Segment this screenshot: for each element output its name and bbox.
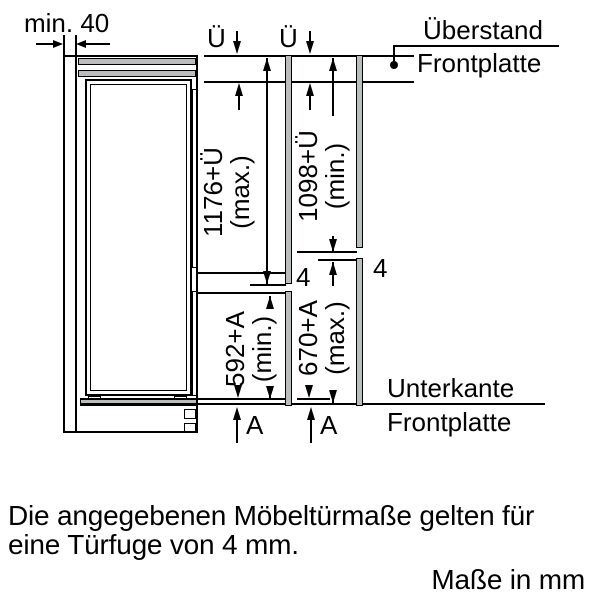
dim-value: 592+A bbox=[222, 306, 249, 392]
a-label-arrow-shaft-right bbox=[310, 418, 312, 443]
arrowhead bbox=[263, 58, 271, 71]
dim-end-tick-upper-left bbox=[250, 284, 286, 286]
arrowhead bbox=[266, 386, 274, 399]
arrowhead bbox=[329, 58, 337, 71]
cabinet-top-rail-1 bbox=[78, 58, 196, 65]
note-line1: Die angegebenen Möbeltürmaße gelten für bbox=[8, 501, 534, 530]
arrowhead bbox=[306, 41, 314, 54]
appliance-door-inner-line bbox=[90, 84, 187, 391]
arrowhead bbox=[307, 407, 315, 420]
arrowhead bbox=[263, 271, 271, 284]
dim-end-tick-upper-right bbox=[297, 251, 357, 253]
door-bottom-line-right bbox=[297, 398, 330, 400]
arrowhead bbox=[306, 83, 314, 96]
front-panel-left-upper bbox=[285, 55, 292, 284]
arrowhead bbox=[329, 262, 337, 275]
overhang-arrow-shaft-left bbox=[238, 94, 240, 110]
overhang-arrow-shaft-right bbox=[309, 94, 311, 110]
arrowhead bbox=[234, 385, 242, 398]
arrowhead bbox=[266, 296, 274, 309]
dim-label-upper-right: 1098+Ü (min.) bbox=[295, 116, 349, 236]
arrowhead bbox=[329, 390, 337, 403]
dim-value: 1098+Ü bbox=[295, 116, 322, 236]
min-gap-arrow-shaft-right bbox=[86, 43, 110, 45]
dim-start-tick-lower-right bbox=[318, 259, 357, 261]
dim-qualifier: (max.) bbox=[322, 286, 349, 390]
dim-qualifier: (max.) bbox=[227, 117, 254, 267]
min-gap-label: min. 40 bbox=[24, 10, 109, 37]
front-panel-left-lower bbox=[285, 291, 292, 406]
dim-qualifier: (min.) bbox=[249, 306, 276, 392]
callout-bottom-line1: Unterkante bbox=[387, 375, 514, 402]
callout-top-line2: Frontplatte bbox=[417, 50, 541, 77]
overhang-symbol-left: Ü bbox=[207, 25, 226, 52]
callout-top-line1: Überstand bbox=[423, 17, 543, 44]
door-hinge-strip-upper bbox=[192, 89, 197, 268]
door-split-line-upper bbox=[197, 272, 285, 274]
front-panel-top-line bbox=[204, 55, 414, 57]
callout-bottom-line2: Frontplatte bbox=[387, 409, 511, 436]
bottom-ref-right: A bbox=[320, 412, 337, 439]
min-gap-tick-left bbox=[63, 35, 65, 56]
dim-value: 670+A bbox=[295, 286, 322, 390]
cabinet-base-block-1 bbox=[184, 409, 196, 419]
cabinet-top-rail-2 bbox=[78, 70, 196, 77]
gap-label-right: 4 bbox=[373, 255, 387, 282]
dim-label-lower-left: 592+A (min.) bbox=[222, 306, 276, 392]
door-split-line-lower bbox=[197, 292, 285, 294]
arrowhead bbox=[235, 83, 243, 96]
dim-qualifier: (min.) bbox=[322, 116, 349, 236]
front-panel-right-lower bbox=[356, 258, 363, 406]
dim-label-lower-right: 670+A (max.) bbox=[295, 286, 349, 390]
front-panel-bottom-line bbox=[80, 403, 545, 405]
door-bottom-line-left bbox=[80, 398, 285, 400]
arrowhead bbox=[233, 407, 241, 420]
a-label-arrow-shaft-left bbox=[236, 418, 238, 443]
bottom-ref-left: A bbox=[246, 412, 263, 439]
arrowhead bbox=[53, 40, 63, 48]
front-panel-right-upper bbox=[356, 55, 363, 248]
arrowhead bbox=[329, 239, 337, 252]
installation-diagram: 1176+Ü (max.) 1098+Ü (min.) 592+A (min.)… bbox=[0, 0, 600, 600]
overhang-symbol-right: Ü bbox=[279, 25, 298, 52]
min-gap-arrow-shaft-left bbox=[36, 43, 54, 45]
door-hinge-strip-lower bbox=[192, 291, 197, 396]
units-note: Maße in mm bbox=[385, 565, 585, 594]
cabinet-base-block-2 bbox=[184, 423, 196, 432]
niche-wall-line bbox=[75, 57, 77, 431]
dim-value: 1176+Ü bbox=[200, 117, 227, 267]
overhang-leader-dot bbox=[390, 61, 398, 69]
arrowhead bbox=[305, 385, 313, 398]
dim-shaft-upper-left bbox=[266, 58, 268, 284]
note-line2: eine Türfuge von 4 mm. bbox=[8, 530, 299, 559]
arrowhead bbox=[76, 40, 86, 48]
overhang-callout-line bbox=[393, 45, 559, 47]
gap-label-left: 4 bbox=[296, 264, 310, 291]
dim-label-upper-left: 1176+Ü (max.) bbox=[200, 117, 254, 267]
arrowhead bbox=[233, 41, 241, 54]
